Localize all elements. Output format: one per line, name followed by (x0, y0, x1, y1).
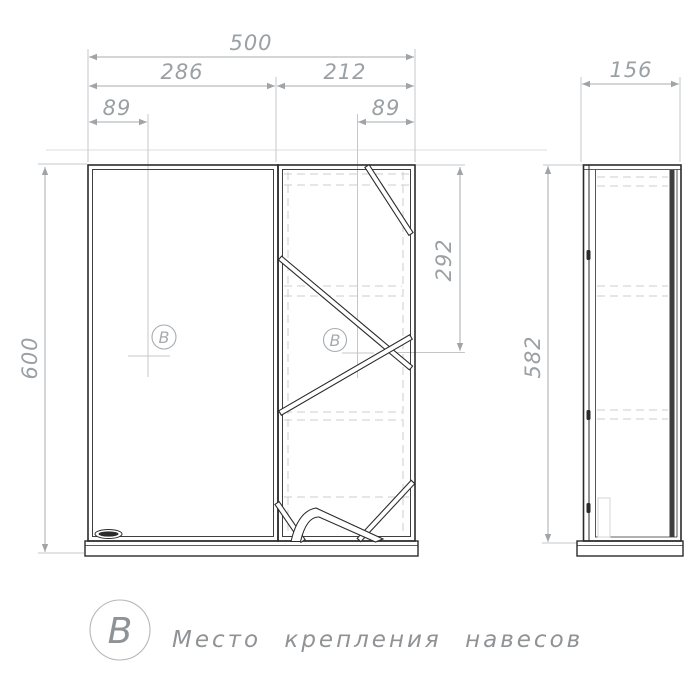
bottom-shelf-trim (85, 541, 418, 556)
cabinet-side-body (577, 165, 683, 556)
hinge-bottom (587, 503, 591, 513)
door-decor-strips (275, 165, 415, 543)
side-extension-lines (542, 77, 680, 543)
hinge-middle (587, 410, 591, 420)
mount-marker-right-label: B (330, 331, 341, 350)
legend-label: Место крепления навесов (172, 627, 583, 653)
legend: B Место крепления навесов (90, 600, 583, 660)
dim-width-left: 286 (160, 60, 203, 84)
dim-width-total: 500 (229, 31, 272, 55)
front-view: B B 500 286 212 89 89 600 292 (18, 31, 547, 556)
dim-height-total: 600 (18, 336, 42, 379)
mirror-edge-strip (670, 170, 675, 537)
side-bottom-trim (577, 541, 683, 556)
front-dimensions: 500 286 212 89 89 600 292 (18, 31, 460, 552)
technical-drawing-canvas: B B 500 286 212 89 89 600 292 (0, 0, 700, 700)
mount-marker-right: B (324, 329, 347, 352)
cabinet-drawing: B B 500 286 212 89 89 600 292 (0, 0, 700, 700)
dim-offset-right: 89 (372, 96, 401, 120)
side-hidden-lines (597, 177, 668, 537)
dim-mount-height: 292 (432, 238, 456, 281)
dim-width-right: 212 (323, 60, 366, 84)
brand-logo (95, 530, 122, 539)
extension-lines (38, 49, 547, 553)
side-dimensions: 156 582 (521, 58, 679, 542)
mirror-door-panel (88, 165, 278, 541)
dim-depth: 156 (609, 58, 652, 82)
mount-marker-left-label: B (159, 328, 170, 347)
legend-symbol: B (108, 611, 133, 652)
dim-offset-left: 89 (103, 96, 132, 120)
mount-marker-left: B (152, 325, 176, 349)
side-view: 156 582 (521, 58, 683, 556)
hinge-top (587, 250, 591, 260)
side-outline (584, 165, 682, 541)
dim-side-height: 582 (521, 335, 545, 378)
mirror-door-inner-frame (93, 170, 274, 537)
